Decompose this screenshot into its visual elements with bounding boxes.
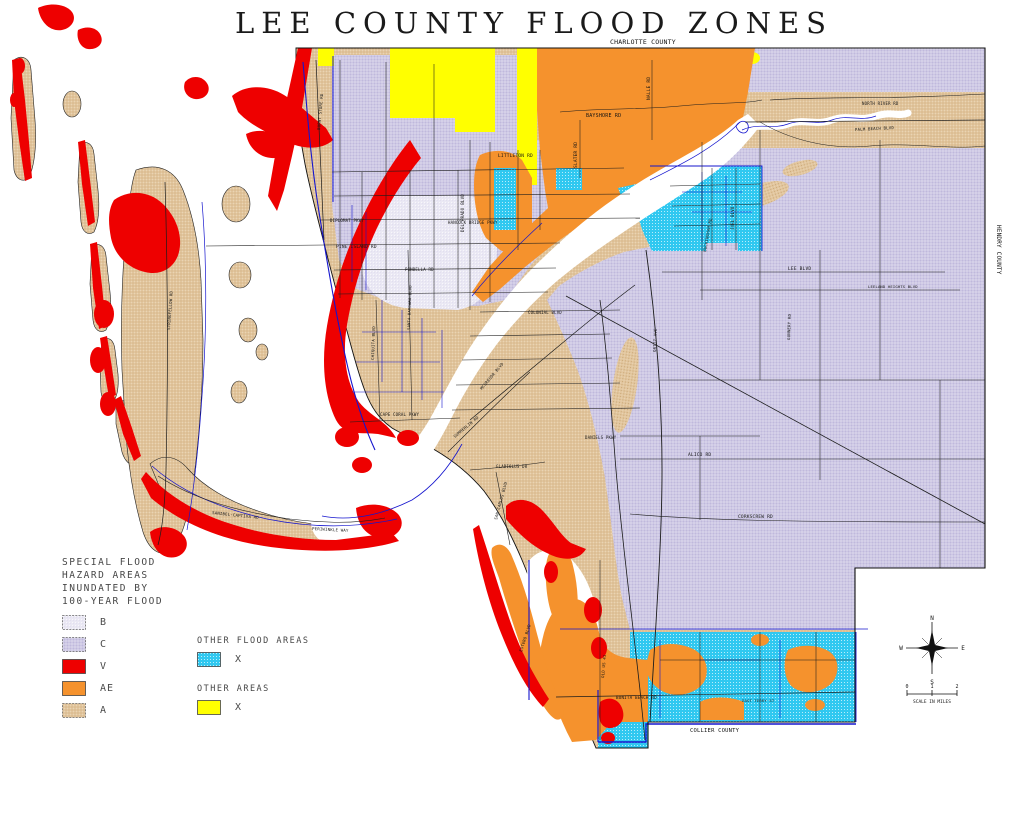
legend-item-label: X: [235, 654, 242, 665]
scale-bar-label: SCALE IN MILES: [913, 699, 951, 705]
map-label: DANIELS PKWY: [585, 435, 617, 440]
zone-a-swatch-icon: [62, 703, 86, 718]
legend-item-label: V: [100, 661, 107, 672]
legend-item-label: B: [100, 617, 107, 628]
legend-other-areas: OTHER AREAS X: [197, 684, 270, 722]
map-label: DEL PRADO BLVD: [460, 194, 465, 232]
map-label: CHARLOTTE COUNTY: [610, 38, 676, 46]
map-label: LEE BLVD: [788, 266, 811, 272]
compass-w-label: W: [899, 645, 903, 652]
legend-item-x-flood: X: [197, 652, 310, 667]
map-label: GLADIOLUS DR: [496, 464, 528, 469]
legend-title: SPECIAL FLOOD HAZARD AREAS INUNDATED BY …: [62, 556, 163, 608]
scale-tick-0: 0: [905, 684, 908, 690]
compass-rose: N S E W: [899, 615, 965, 686]
legend-item-x-other: X: [197, 700, 270, 715]
map-label: PONDELLA RD: [405, 267, 434, 272]
map-label: PINE ISLAND RD: [336, 244, 377, 250]
map-label: COLONIAL BLVD: [528, 310, 562, 315]
legend-item-c: C: [62, 637, 163, 652]
scale-tick-1: 1: [930, 684, 933, 690]
map-label: EAST TERRY ST: [742, 698, 775, 703]
legend-special-flood: SPECIAL FLOOD HAZARD AREAS INUNDATED BY …: [62, 556, 163, 725]
zone-v-swatch-icon: [62, 659, 86, 674]
map-label: LITTLETON RD: [498, 153, 533, 159]
map-label: CAPE CORAL PKWY: [380, 412, 420, 417]
map-label: HANCOCK BRIDGE PKWY: [448, 220, 498, 225]
map-label: JOEL BLVD: [730, 206, 735, 230]
scale-bar: 0 1 2 SCALE IN MILES: [905, 684, 958, 705]
legend-item-label: C: [100, 639, 107, 650]
legend-item-ae: AE: [62, 681, 163, 696]
map-label: HENDRY COUNTY: [995, 225, 1002, 275]
map-label: BONITA BEACH RD: [616, 695, 657, 700]
map-label: ALICO RD: [688, 452, 711, 458]
compass-e-label: E: [961, 645, 965, 652]
map-label: SLATER RD: [573, 142, 579, 168]
zone-c-swatch-icon: [62, 637, 86, 652]
zone-x-flood-swatch-icon: [197, 652, 221, 667]
scale-tick-2: 2: [955, 684, 958, 690]
legend-item-b: B: [62, 615, 163, 630]
legend-section-title: OTHER FLOOD AREAS: [197, 636, 310, 646]
zone-ae-swatch-icon: [62, 681, 86, 696]
legend-item-label: A: [100, 705, 107, 716]
map-label: BAYSHORE RD: [586, 113, 621, 119]
legend-item-v: V: [62, 659, 163, 674]
legend-item-label: AE: [100, 683, 114, 694]
zone-x-other-swatch-icon: [197, 700, 221, 715]
map-label: NALLE RD: [646, 77, 652, 100]
map-label: NORTH RIVER RD: [862, 101, 899, 106]
legend-section-title: OTHER AREAS: [197, 684, 270, 694]
map-label: GUNNERY RD: [786, 313, 792, 340]
map-label: LEELAND HEIGHTS BLVD: [868, 284, 918, 289]
map-label: ORTIZ AVE: [652, 328, 658, 352]
zone-b-swatch-icon: [62, 615, 86, 630]
legend-item-label: X: [235, 702, 242, 713]
legend-item-a: A: [62, 703, 163, 718]
map-label: CORKSCREW RD: [738, 514, 773, 520]
compass-n-label: N: [930, 615, 934, 622]
legend-other-flood-areas: OTHER FLOOD AREAS X: [197, 636, 310, 674]
map-label: COLLIER COUNTY: [690, 728, 740, 734]
flood-zone-map-page: LEE COUNTY FLOOD ZONES: [0, 0, 1024, 813]
map-label: DIPLOMAT PKWY: [330, 218, 364, 223]
